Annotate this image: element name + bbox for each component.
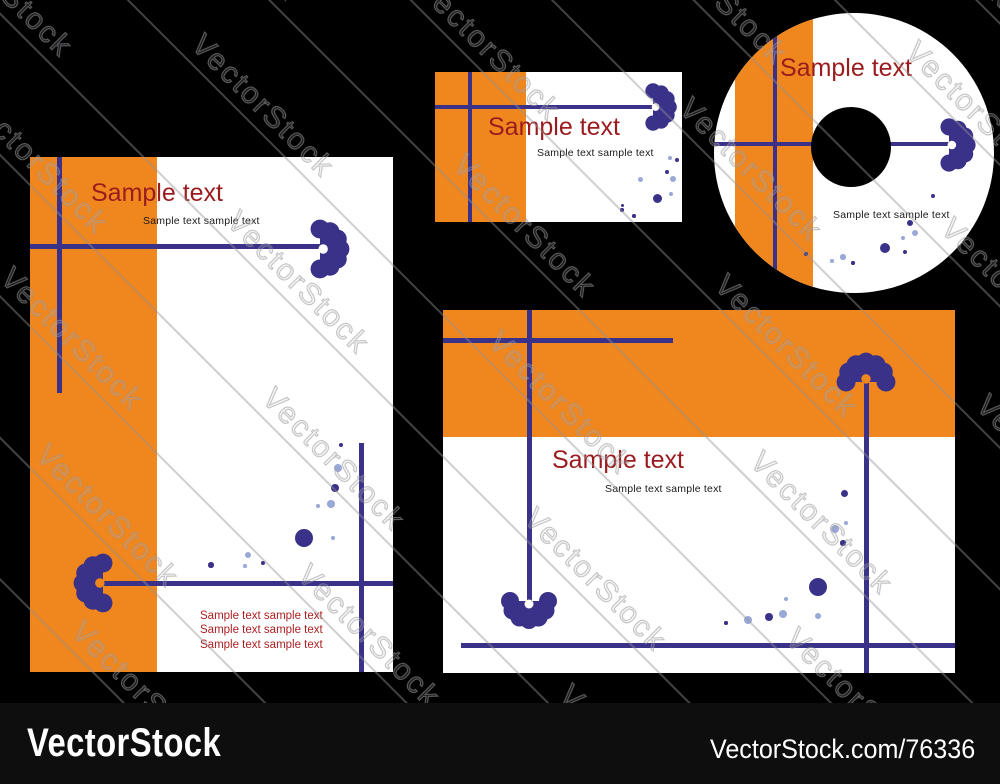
artwork-area: Sample text Sample text sample text Samp… xyxy=(0,0,1000,703)
decorative-dot xyxy=(831,525,840,534)
flower-icon xyxy=(497,569,561,633)
decorative-dot xyxy=(765,613,774,622)
accent-line-vertical-left xyxy=(527,310,532,603)
decorative-dot xyxy=(841,490,848,497)
accent-line-horizontal-bottom xyxy=(103,581,393,586)
flower-icon xyxy=(621,75,682,139)
decorative-dot xyxy=(931,194,935,198)
decorative-dot xyxy=(316,504,320,508)
decorative-dot xyxy=(339,443,344,448)
business-card-mockup: Sample text Sample text sample text xyxy=(435,72,682,222)
flower-icon xyxy=(834,350,898,414)
cd-label-title: Sample text xyxy=(780,56,912,81)
cd-label-mockup: Sample text Sample text sample text xyxy=(714,13,994,293)
decorative-dot xyxy=(840,540,845,545)
decorative-dot xyxy=(724,621,727,624)
accent-line-horizontal-top xyxy=(443,338,673,343)
letterhead-title: Sample text xyxy=(91,181,223,206)
decorative-dot xyxy=(675,158,680,163)
decorative-dot xyxy=(334,464,343,473)
accent-line-horizontal-left xyxy=(714,142,813,146)
watermark-text: VectorStock xyxy=(969,389,1000,546)
decorative-dot xyxy=(665,170,669,174)
decorative-dot xyxy=(669,192,673,196)
letterhead-mockup: Sample text Sample text sample text Samp… xyxy=(30,157,393,672)
business-card-subtitle: Sample text sample text xyxy=(537,148,654,159)
accent-line-vertical xyxy=(773,13,777,293)
decorative-dot xyxy=(912,230,918,236)
decorative-dot xyxy=(744,616,752,624)
decorative-dot xyxy=(245,552,251,558)
decorative-dot xyxy=(208,562,213,567)
decorative-dot xyxy=(620,208,623,211)
letterhead-footer-line: Sample text sample text xyxy=(200,623,323,637)
decorative-dot xyxy=(327,500,334,507)
watermark-text: VectorStock xyxy=(149,0,306,8)
orange-stripe xyxy=(435,72,526,222)
image-reference-url[interactable]: VectorStock.com/76336 xyxy=(710,734,975,765)
cd-label-subtitle: Sample text sample text xyxy=(833,210,950,221)
letterhead-footer-line: Sample text sample text xyxy=(200,609,323,623)
decorative-dot xyxy=(331,536,336,541)
letterhead-footer-text: Sample text sample text Sample text samp… xyxy=(200,609,323,652)
accent-line-horizontal-top xyxy=(30,244,322,249)
accent-line-vertical xyxy=(468,72,472,222)
accent-line-vertical-right xyxy=(359,443,364,672)
flower-icon xyxy=(288,217,352,281)
decorative-dot xyxy=(779,610,787,618)
flower-icon xyxy=(917,113,981,177)
decorative-dot xyxy=(331,484,340,493)
folder-title: Sample text xyxy=(552,448,684,473)
folder-subtitle: Sample text sample text xyxy=(605,484,722,495)
decorative-dot xyxy=(653,194,662,203)
letterhead-subtitle: Sample text sample text xyxy=(143,216,260,227)
watermark-text: VectorStock xyxy=(0,0,79,65)
decorative-dot xyxy=(621,204,624,207)
flower-icon xyxy=(71,551,135,615)
business-card-title: Sample text xyxy=(488,115,620,140)
watermark-text: VectorStock xyxy=(863,0,1000,15)
decorative-dot xyxy=(851,261,854,264)
decorative-dot xyxy=(261,561,265,565)
folder-mockup: Sample text Sample text sample text xyxy=(443,310,955,673)
decorative-dot xyxy=(668,156,672,160)
watermark-text: VectorStock xyxy=(552,679,709,703)
decorative-dot xyxy=(784,597,788,601)
decorative-dot xyxy=(830,259,833,262)
decorative-dot xyxy=(295,529,314,548)
letterhead-footer-line: Sample text sample text xyxy=(200,638,323,652)
decorative-dot xyxy=(903,250,907,254)
decorative-dot xyxy=(670,176,676,182)
decorative-dot xyxy=(243,564,246,567)
decorative-dot xyxy=(844,521,848,525)
decorative-dot xyxy=(632,214,635,217)
accent-line-vertical-right xyxy=(864,382,869,673)
decorative-dot xyxy=(638,177,643,182)
decorative-dot xyxy=(815,613,821,619)
vectorstock-image-preview: Sample text Sample text sample text Samp… xyxy=(0,0,1000,784)
accent-line-horizontal-bottom xyxy=(461,643,955,648)
decorative-dot xyxy=(880,243,890,253)
brand-logo: VectorStock xyxy=(27,721,221,766)
accent-line-vertical-left xyxy=(57,157,62,393)
decorative-dot xyxy=(809,578,828,597)
cd-center-hole xyxy=(811,107,891,187)
decorative-dot xyxy=(840,254,845,259)
decorative-dot xyxy=(901,236,905,240)
